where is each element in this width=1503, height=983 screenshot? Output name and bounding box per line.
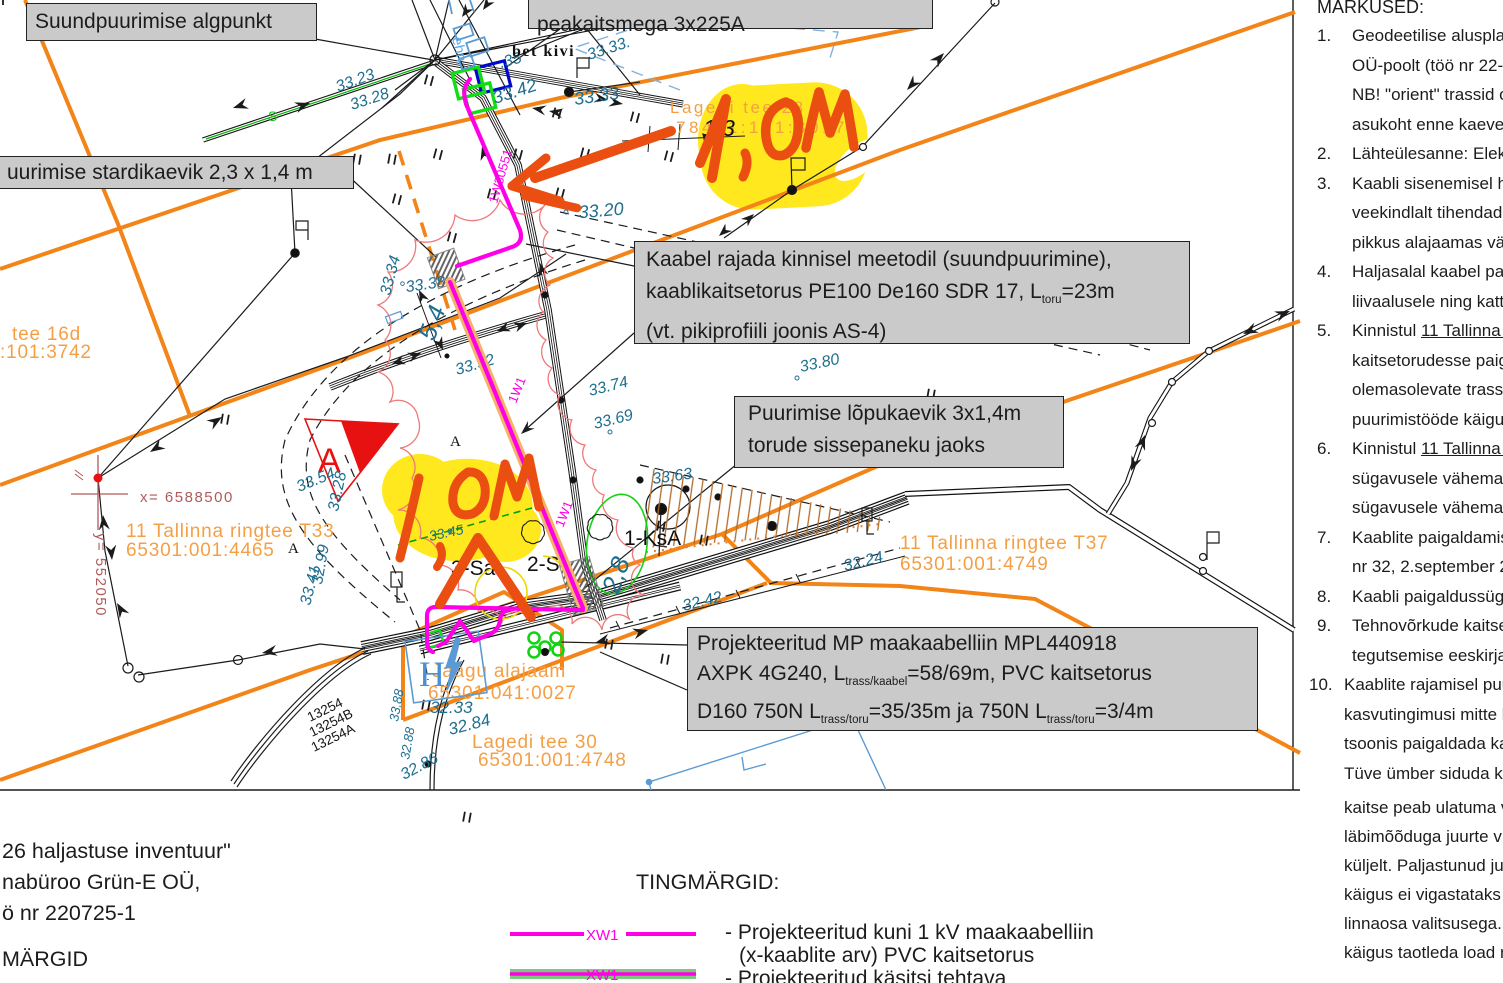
svg-text:65301:001:4748: 65301:001:4748 xyxy=(478,750,627,771)
svg-text:x= 6588500: x= 6588500 xyxy=(140,489,234,506)
svg-text::101:3742: :101:3742 xyxy=(0,342,92,363)
svg-text:bet kivi: bet kivi xyxy=(512,43,575,60)
svg-text:11 Tallinna ringtee T37: 11 Tallinna ringtee T37 xyxy=(900,533,1109,554)
svg-text:y= 552050: y= 552050 xyxy=(92,533,109,617)
svg-text:A: A xyxy=(450,434,461,450)
svg-text:A: A xyxy=(288,541,299,557)
svg-text:H: H xyxy=(419,654,445,694)
svg-text:32.33: 32.33 xyxy=(430,698,473,717)
svg-text:1-KsA: 1-KsA xyxy=(624,527,681,550)
svg-text:65301:001:4749: 65301:001:4749 xyxy=(900,554,1049,575)
svg-text:S: S xyxy=(268,108,277,124)
svg-text:11 Tallinna ringtee T33: 11 Tallinna ringtee T33 xyxy=(126,521,335,542)
svg-text:65301:001:4465: 65301:001:4465 xyxy=(126,540,275,561)
